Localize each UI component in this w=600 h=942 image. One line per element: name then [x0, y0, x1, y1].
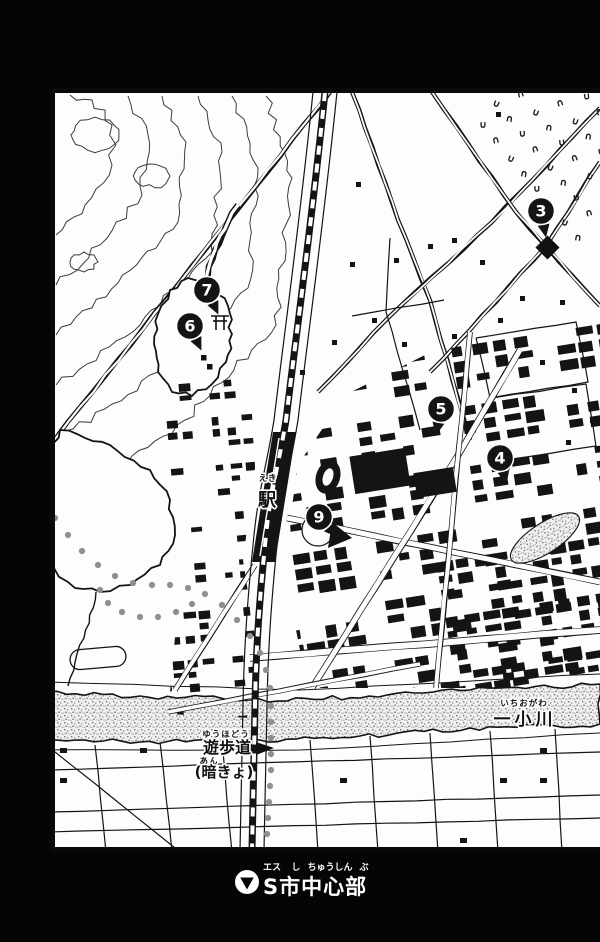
river-label: 一小川	[494, 710, 557, 730]
svg-text:∩: ∩	[544, 122, 554, 134]
svg-text:∩: ∩	[584, 131, 593, 143]
marker-number: 7	[201, 281, 212, 300]
caption-ruby-4: ぶ	[358, 862, 368, 873]
caption-ruby-1: エス	[263, 862, 281, 873]
marker-number: 4	[494, 449, 505, 468]
svg-text:∪: ∪	[533, 184, 542, 195]
svg-text:∩: ∩	[573, 232, 583, 244]
station-label-ruby: えき	[259, 474, 278, 484]
river-label-ruby: いちおがわ	[500, 698, 548, 709]
svg-text:∪: ∪	[557, 137, 566, 149]
marker-number: 3	[535, 202, 546, 221]
manga-map-page: ∪∩∪∩∪∩∪∩∪∩∪∩∪∩∪∩∪∩∪∩∪∩∪∩∪∩∩∪∩∪∩∪∩∪∩∪∩∪∩∪…	[0, 0, 600, 942]
marker-number: 6	[184, 317, 195, 336]
map-caption: エス し ちゅうしん ぶ S市中心部	[235, 862, 369, 899]
promenade-label: 遊歩道	[203, 738, 251, 757]
station-label: 駅	[257, 490, 277, 511]
caption-title: S市中心部	[263, 875, 367, 899]
city-map: ∪∩∪∩∪∩∪∩∪∩∪∩∪∩∪∩∪∩∪∩∪∩∪∩∪∩∩∪∩∪∩∪∩∪∩∪∩∪∩∪…	[0, 0, 600, 942]
marker-number: 5	[435, 400, 446, 419]
culvert-label: (暗きょ)	[195, 763, 254, 781]
svg-text:∪: ∪	[518, 129, 527, 140]
svg-text:∪: ∪	[597, 146, 600, 158]
svg-text:∪: ∪	[572, 192, 581, 204]
marker-number: 9	[313, 508, 324, 527]
caption-ruby-3: ちゅうしん	[307, 862, 352, 873]
svg-text:∪: ∪	[479, 120, 487, 131]
svg-text:∩: ∩	[559, 177, 569, 189]
caption-ruby-2: し	[291, 862, 300, 873]
